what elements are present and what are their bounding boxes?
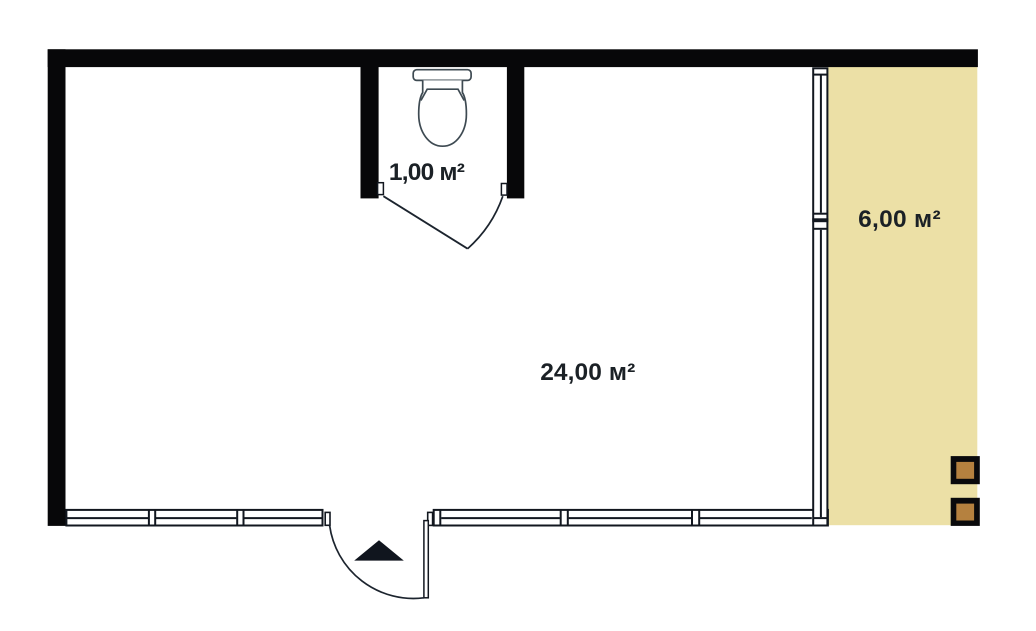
svg-text:1,00 м²: 1,00 м² (389, 159, 465, 186)
svg-text:24,00 м²: 24,00 м² (540, 359, 635, 386)
svg-text:6,00 м²: 6,00 м² (858, 206, 941, 233)
